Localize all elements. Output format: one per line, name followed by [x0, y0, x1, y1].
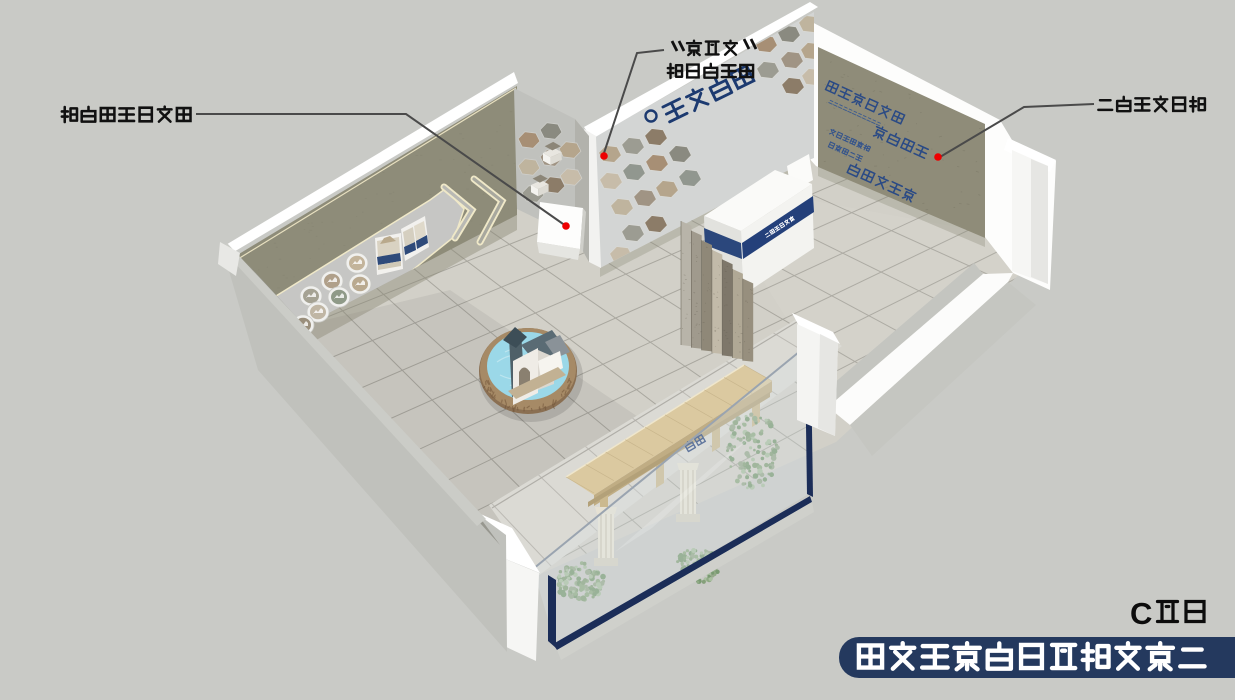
svg-text:C: C [1130, 596, 1152, 631]
